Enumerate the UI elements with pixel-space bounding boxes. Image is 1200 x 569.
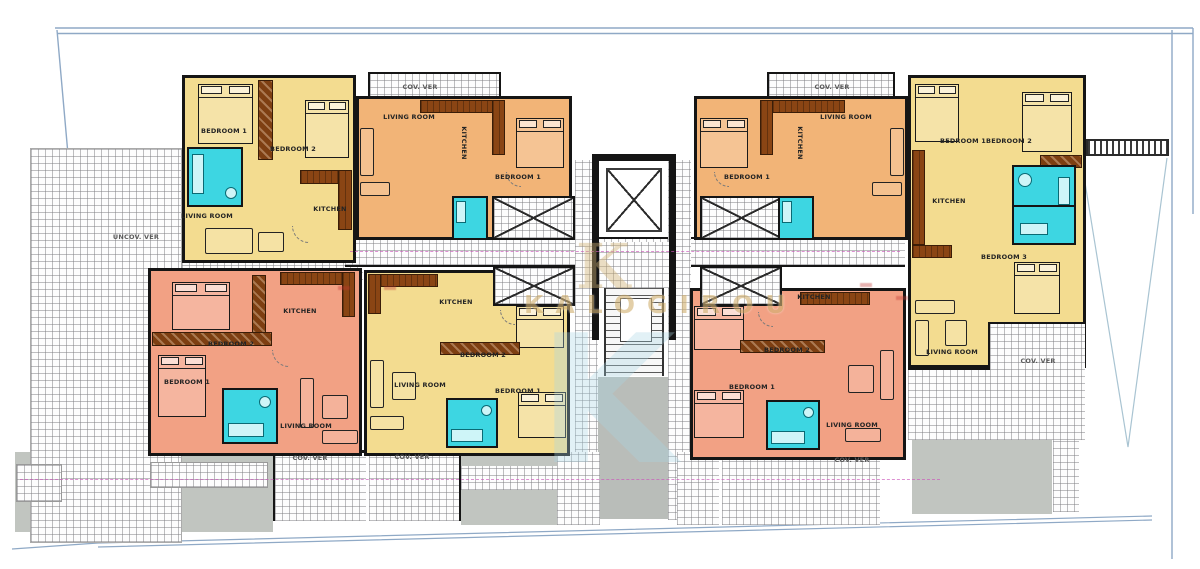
label-kitchen: KITCHEN xyxy=(460,126,468,159)
label-living-room: LIVING ROOM xyxy=(394,381,446,389)
coffee-table xyxy=(945,320,967,346)
label-kitchen: KITCHEN xyxy=(796,126,804,159)
label-living-room: LIVING ROOM xyxy=(280,422,332,430)
coffee-table xyxy=(848,365,874,393)
apt-number-annotation xyxy=(338,286,350,290)
car-ramp-lines xyxy=(1081,158,1167,447)
bathroom xyxy=(766,400,820,450)
sofa xyxy=(322,430,358,444)
kitchen-counter xyxy=(368,274,381,314)
veranda-bottom-small-left xyxy=(16,464,62,502)
label-living-room: LIVING ROOM xyxy=(820,113,872,121)
bed xyxy=(516,118,564,168)
balcony-x-left-lower xyxy=(493,266,575,306)
armchair xyxy=(258,232,284,252)
label-covered-veranda: COV. VER xyxy=(402,83,437,91)
veranda-bottom-strip xyxy=(150,462,268,488)
label-kitchen: KITCHEN xyxy=(313,205,346,213)
kitchen-counter xyxy=(912,150,925,245)
bathroom xyxy=(778,196,814,240)
elevator-landing xyxy=(599,242,669,288)
elevator-wall-right xyxy=(669,154,676,340)
label-covered-veranda: COV. VER xyxy=(814,83,849,91)
bed xyxy=(172,282,230,330)
label-bedroom-1: BEDROOM 1 xyxy=(495,173,541,181)
label-uncovered-veranda: UNCOV. VER xyxy=(113,233,159,241)
veranda-bottom-mid-strip xyxy=(461,466,557,490)
label-bedroom-3: BEDROOM 3 xyxy=(981,253,1027,261)
bed xyxy=(694,306,744,350)
label-bedroom-2: BEDROOM 2 xyxy=(208,340,254,348)
bathroom xyxy=(452,196,488,240)
label-kitchen: KITCHEN xyxy=(932,197,965,205)
sofa xyxy=(890,128,904,176)
label-bedroom-2: BEDROOM 2 xyxy=(270,145,316,153)
kitchen-counter xyxy=(342,272,355,317)
sofa xyxy=(915,300,955,314)
elevator-shaft xyxy=(606,168,662,232)
balcony-x-left-upper xyxy=(492,196,575,240)
bathroom xyxy=(222,388,278,444)
balcony-x-right-upper xyxy=(700,196,783,240)
sofa xyxy=(300,378,314,428)
covered-veranda-unit-d xyxy=(988,322,1085,440)
apt-number-annotation xyxy=(384,286,396,290)
sofa xyxy=(880,350,894,400)
bed xyxy=(198,84,253,144)
sofa xyxy=(370,360,384,408)
apt-number-annotation xyxy=(896,296,908,300)
bed xyxy=(516,306,564,348)
bed xyxy=(694,390,744,438)
sofa xyxy=(370,416,404,430)
driveway-area-right xyxy=(912,440,1052,514)
bed xyxy=(158,355,206,417)
veranda-bottom-right-col xyxy=(1053,440,1079,512)
center-ramp xyxy=(596,377,668,519)
veranda-bottom-center-right xyxy=(677,452,719,525)
label-covered-veranda: COV. VER xyxy=(834,456,869,464)
label-covered-veranda: COV. VER xyxy=(1020,357,1055,365)
kitchen-counter xyxy=(338,170,352,230)
label-bedroom-1: BEDROOM 1 xyxy=(201,127,247,135)
label-bedroom-2: BEDROOM 2 xyxy=(764,346,810,354)
bathroom xyxy=(1012,165,1076,245)
label-living-room: LIVING ROOM xyxy=(926,348,978,356)
sofa xyxy=(845,428,881,442)
label-bedroom-2: BEDROOM 2 xyxy=(460,351,506,359)
label-bedroom-2: BEDROOM 2 xyxy=(986,137,1032,145)
stair-well xyxy=(620,298,652,342)
elevator-wall-left xyxy=(592,154,599,340)
veranda-bottom-center-left xyxy=(557,452,600,525)
bed xyxy=(700,118,748,168)
label-living-room: LIVING ROOM xyxy=(383,113,435,121)
label-living-room: LIVING ROOM xyxy=(826,421,878,429)
bed xyxy=(1014,262,1060,314)
label-bedroom-1: BEDROOM 1 xyxy=(729,383,775,391)
veranda-centerline xyxy=(20,479,940,480)
veranda-below-unit-d xyxy=(908,368,990,440)
balcony-x-right-lower xyxy=(700,266,782,306)
access-bridge xyxy=(1086,139,1169,156)
corridor-centerline xyxy=(350,251,900,252)
kitchen-counter xyxy=(912,245,952,258)
label-kitchen: KITCHEN xyxy=(797,293,830,301)
kitchen-counter xyxy=(492,100,505,155)
label-living-room: LIVING ROOM xyxy=(181,212,233,220)
bathroom xyxy=(187,147,243,207)
elevator-wall-top xyxy=(592,154,676,161)
bed xyxy=(915,84,959,142)
apt-number-annotation xyxy=(860,283,872,287)
bathroom xyxy=(446,398,498,448)
coffee-table xyxy=(322,395,348,419)
sofa xyxy=(872,182,902,196)
label-kitchen: KITCHEN xyxy=(283,307,316,315)
label-bedroom-1: BEDROOM 1 xyxy=(164,378,210,386)
label-bedroom-1: BEDROOM 1 xyxy=(940,137,986,145)
bed xyxy=(518,392,566,438)
label-bedroom-1: BEDROOM 1 xyxy=(724,173,770,181)
floor-plan-canvas: UNCOV. VER BEDROOM 1 BEDROOM 2 KITCHEN L… xyxy=(0,0,1200,569)
label-kitchen: KITCHEN xyxy=(439,298,472,306)
sofa xyxy=(360,182,390,196)
wardrobe xyxy=(252,275,266,333)
sofa xyxy=(205,228,253,254)
label-bedroom-1: BEDROOM 1 xyxy=(495,387,541,395)
label-covered-veranda: COV. VER xyxy=(394,453,429,461)
kitchen-counter xyxy=(760,100,773,155)
label-covered-veranda: COV. VER xyxy=(292,454,327,462)
staircase xyxy=(604,288,664,376)
sofa xyxy=(360,128,374,176)
